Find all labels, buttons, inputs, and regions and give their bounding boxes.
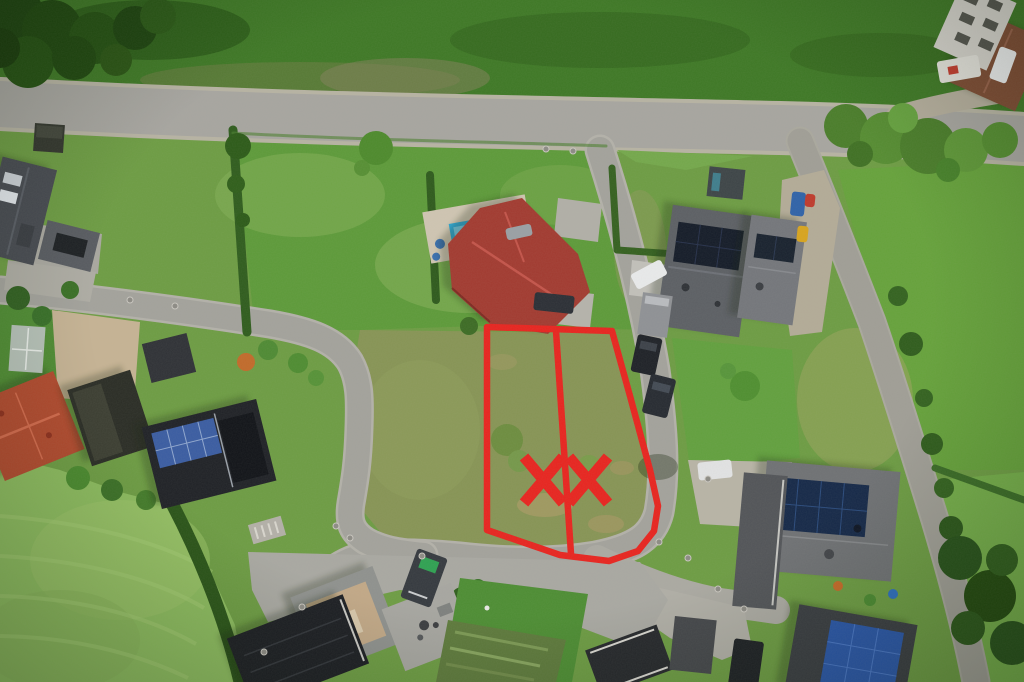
aerial-photo [0, 0, 1024, 682]
aerial-photo-stage [0, 0, 1024, 682]
photo-grain [0, 0, 1024, 682]
